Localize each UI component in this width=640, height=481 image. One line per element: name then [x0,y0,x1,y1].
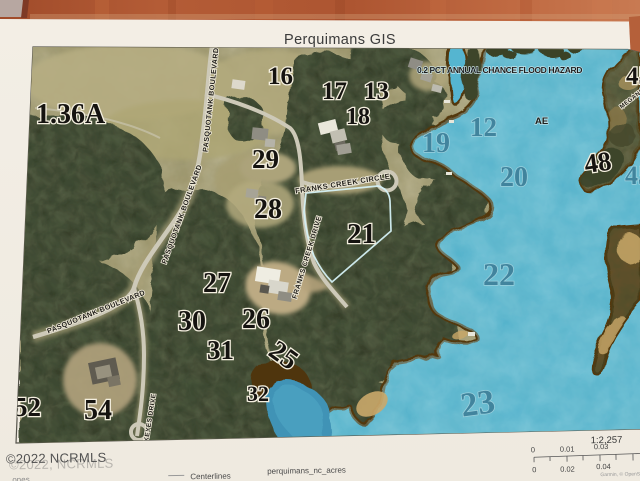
svg-text:48: 48 [582,146,613,179]
svg-text:32: 32 [247,381,269,406]
svg-text:0.01: 0.01 [560,445,575,454]
svg-text:AE: AE [535,116,548,127]
svg-text:31: 31 [207,335,234,365]
svg-text:perquimans_nc_acres: perquimans_nc_acres [267,466,346,476]
svg-text:1.36A: 1.36A [36,99,106,130]
svg-text:0.02: 0.02 [560,465,575,474]
svg-text:27: 27 [203,268,231,299]
svg-text:Centerlines: Centerlines [190,472,231,481]
svg-text:12: 12 [470,112,497,142]
svg-text:45: 45 [625,161,640,190]
svg-text:18: 18 [346,104,370,130]
svg-text:13: 13 [364,78,389,105]
svg-text:19: 19 [422,128,450,159]
svg-text:22: 22 [483,256,515,292]
svg-text:30: 30 [178,306,206,337]
svg-text:26: 26 [242,304,270,335]
svg-text:0.2 PCT ANNUAL CHANCE FLOOD HA: 0.2 PCT ANNUAL CHANCE FLOOD HAZARD [417,65,583,75]
svg-text:0.03: 0.03 [594,442,609,451]
svg-text:28: 28 [254,194,282,225]
svg-text:Garmin, © OpenStreetMap: Garmin, © OpenStreetMap [600,470,640,478]
svg-text:0: 0 [532,465,536,474]
svg-text:ones: ones [12,475,30,481]
svg-text:45: 45 [626,63,640,90]
svg-text:0: 0 [531,445,535,454]
svg-text:0.04: 0.04 [596,462,611,471]
svg-text:23: 23 [458,383,497,424]
svg-text:21: 21 [347,218,376,250]
svg-text:29: 29 [252,144,279,174]
svg-text:20: 20 [500,162,528,193]
svg-text:17: 17 [322,78,347,105]
svg-text:52: 52 [14,392,41,422]
svg-text:54: 54 [84,395,112,426]
svg-text:16: 16 [268,63,293,90]
svg-text:Perquimans GIS: Perquimans GIS [284,32,396,48]
svg-text:©2022, NCRMLS: ©2022, NCRMLS [9,456,114,473]
